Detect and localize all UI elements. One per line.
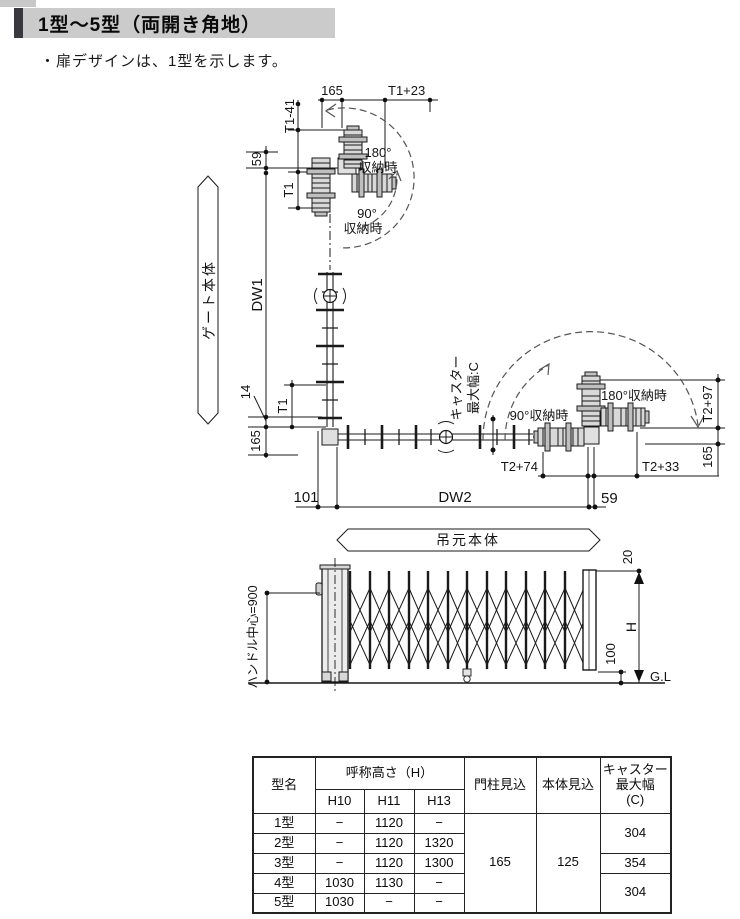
catalog-page: { "page": { "title": "1型～5型（両開き角地）", "no…	[0, 0, 740, 919]
cell-h13-1: −	[414, 813, 464, 833]
cell-h13-2: 1320	[414, 833, 464, 853]
plan-dimension-labels: 165 T1+23 T1-41 59 T1 DW1 14 T1 165 101 …	[238, 83, 715, 507]
label-90-top-txt: 収納時	[343, 221, 382, 236]
col-header-h13: H13	[414, 789, 464, 813]
cell-h10-4: 1030	[315, 873, 364, 893]
cell-h13-3: 1300	[414, 853, 464, 873]
cell-h13-5: −	[414, 893, 464, 913]
col-header-body-depth: 本体見込	[536, 757, 600, 813]
gate-body-banner: ゲート本体	[198, 176, 218, 424]
dim-165-left: 165	[248, 430, 263, 452]
table-row-type3: 3型 − 1120 1300 354	[253, 853, 671, 873]
arc-arrow-top	[326, 104, 336, 117]
cell-h11-2: 1120	[364, 833, 414, 853]
cell-h13-4: −	[414, 873, 464, 893]
dim-59-bottom: 59	[601, 490, 618, 507]
label-handle-center: ハンドル中心=900	[245, 585, 260, 688]
cell-caster-12: 304	[600, 813, 671, 853]
elevation-view	[248, 558, 665, 692]
dim-dw1: DW1	[249, 278, 266, 311]
gate-slats	[350, 571, 565, 669]
dim-t1plus23: T1+23	[388, 83, 425, 98]
hinge-pillar	[316, 558, 350, 692]
label-180-top-txt: 収納時	[358, 160, 397, 175]
col-header-post-depth: 門柱見込	[464, 757, 536, 813]
plan-dimension-marks	[264, 98, 721, 510]
label-caster-2: 最大幅:C	[466, 362, 481, 414]
dim-t2plus74: T2+74	[501, 459, 538, 474]
cell-body-depth: 125	[536, 813, 600, 913]
label-caster-1: キャスター	[449, 355, 464, 420]
dim-59-left: 59	[249, 152, 264, 166]
dim-h: H	[623, 622, 639, 632]
dim-t1minus41: T1-41	[282, 99, 297, 133]
col-header-h11: H11	[364, 789, 414, 813]
mid-caster	[463, 669, 471, 682]
cell-h11-1: 1120	[364, 813, 414, 833]
label-90-top-deg: 90°	[357, 206, 377, 221]
dim-t2plus97: T2+97	[700, 385, 715, 422]
h-arrow-bottom	[634, 670, 644, 682]
cell-h11-4: 1130	[364, 873, 414, 893]
cell-h10-2: −	[315, 833, 364, 853]
label-180-right: 180°収納時	[601, 388, 667, 403]
col-header-h10: H10	[315, 789, 364, 813]
dim-14: 14	[238, 385, 253, 399]
gate-body-banner-label: ゲート本体	[201, 260, 217, 340]
cell-model-3: 3型	[253, 853, 315, 873]
cell-model-1: 1型	[253, 813, 315, 833]
col-header-caster: キャスター 最大幅 (C)	[600, 757, 671, 813]
cell-h10-5: 1030	[315, 893, 364, 913]
hinge-body-banner-label: 吊元本体	[436, 532, 500, 548]
dim-101: 101	[293, 489, 318, 506]
cell-h11-5: −	[364, 893, 414, 913]
col-header-nominal-height: 呼称高さ（H）	[315, 757, 464, 789]
dim-100: 100	[603, 643, 618, 665]
table-row-type1: 1型 − 1120 − 165 125 304	[253, 813, 671, 833]
vertical-gate-extended	[315, 214, 346, 427]
horizontal-gate-extended	[338, 422, 560, 453]
label-180-top-deg: 180°	[365, 145, 392, 160]
hinge-body-banner: 吊元本体	[337, 529, 600, 551]
dim-t1-upper: T1	[281, 182, 296, 197]
cell-caster-3: 354	[600, 853, 671, 873]
h-arrow-top	[634, 572, 644, 584]
dim-165-top: 165	[321, 83, 343, 98]
cell-h10-3: −	[315, 853, 364, 873]
dim-dw2: DW2	[438, 489, 471, 506]
label-90-right: 90°収納時	[510, 408, 569, 423]
dim-t1-lower: T1	[275, 398, 290, 413]
table-row-type4: 4型 1030 1130 − 304	[253, 873, 671, 893]
col-header-model: 型名	[253, 757, 315, 813]
cell-model-4: 4型	[253, 873, 315, 893]
end-post	[583, 570, 596, 670]
cell-post-depth: 165	[464, 813, 536, 913]
dim-t2plus33: T2+33	[642, 459, 679, 474]
corner-junction	[322, 429, 338, 445]
cell-caster-45: 304	[600, 873, 671, 913]
dim-165-right: 165	[700, 446, 715, 468]
dim-20: 20	[620, 550, 635, 564]
cell-h10-1: −	[315, 813, 364, 833]
label-gl: G.L	[650, 669, 671, 684]
cell-h11-3: 1120	[364, 853, 414, 873]
cell-model-2: 2型	[253, 833, 315, 853]
cell-model-5: 5型	[253, 893, 315, 913]
spec-table: 型名 呼称高さ（H） 門柱見込 本体見込 キャスター 最大幅 (C) H10 H…	[252, 756, 672, 914]
